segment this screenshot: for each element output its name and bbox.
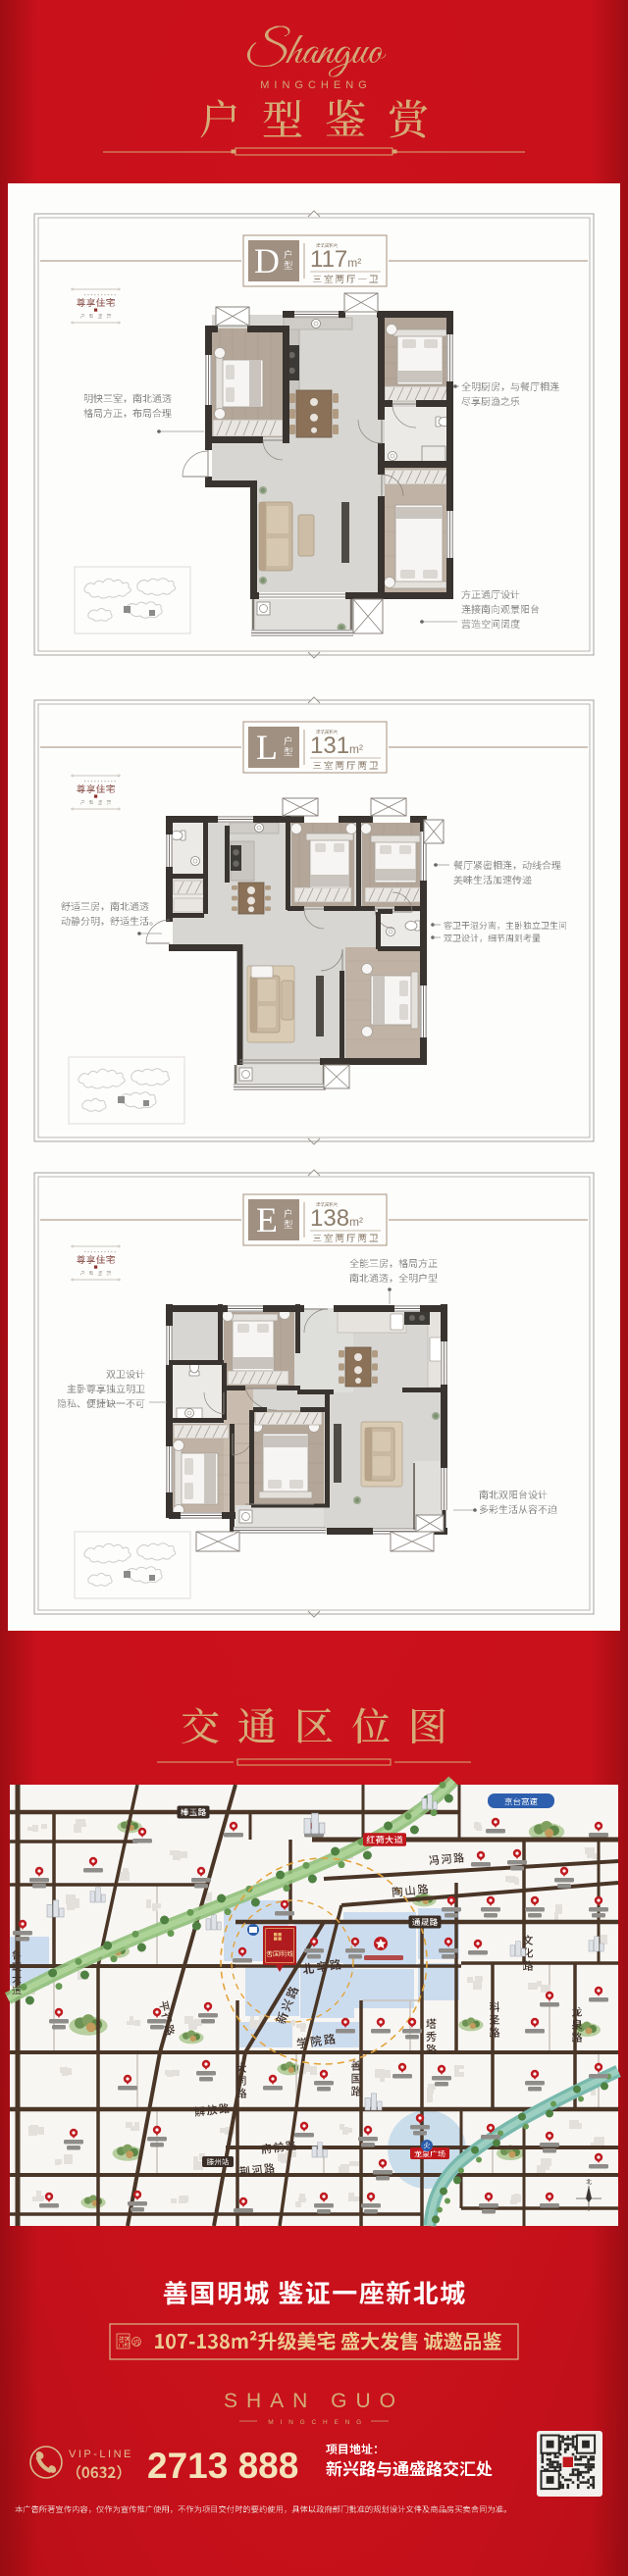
svg-text:MINGCHENG: MINGCHENG (260, 79, 371, 91)
svg-text:VIP-LINE: VIP-LINE (69, 2449, 133, 2460)
svg-text:M I N G C H E N G: M I N G C H E N G (268, 2419, 363, 2426)
svg-text:SHAN GUO: SHAN GUO (224, 2390, 404, 2412)
svg-text:2713 888: 2713 888 (147, 2446, 298, 2486)
